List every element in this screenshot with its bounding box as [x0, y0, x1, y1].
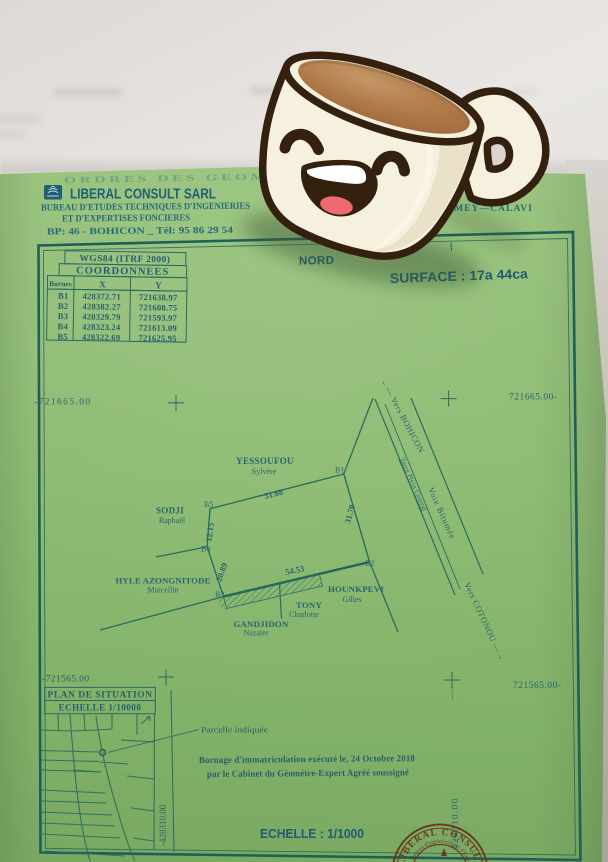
svg-text:721613.09: 721613.09	[139, 323, 177, 334]
svg-text:B2: B2	[365, 559, 374, 568]
svg-text:LIBERAL CONSULT SARL: LIBERAL CONSULT SARL	[70, 187, 216, 203]
svg-text:PLAN DE SITUATION: PLAN DE SITUATION	[48, 691, 153, 701]
svg-text:B1: B1	[58, 291, 69, 301]
svg-text:B4: B4	[201, 545, 210, 554]
svg-text:ECHELLE 1/10000: ECHELLE 1/10000	[59, 703, 142, 713]
svg-text:Terre Plein Central: Terre Plein Central	[398, 457, 428, 512]
svg-text:SODJI: SODJI	[156, 506, 184, 516]
svg-text:721625.95: 721625.95	[138, 333, 176, 344]
svg-text:721565.00-: 721565.00-	[513, 681, 562, 691]
svg-text:Bornage d'immatriculation exéc: Bornage d'immatriculation exécuté le, 24…	[199, 754, 415, 766]
svg-text:20.89: 20.89	[213, 561, 229, 582]
svg-text:Raphaël: Raphaël	[159, 516, 186, 525]
svg-text:ABOMEY—CALAVI: ABOMEY—CALAVI	[430, 204, 533, 214]
svg-text:-721665.00: -721665.00	[34, 398, 92, 408]
svg-text:Bornes: Bornes	[49, 279, 72, 288]
svg-text:RE: RE	[512, 188, 524, 198]
svg-text:ET D'EXPERTISES FONCIERES: ET D'EXPERTISES FONCIERES	[62, 213, 190, 224]
svg-text:B3: B3	[215, 590, 224, 599]
svg-text:-721565.00: -721565.00	[42, 675, 90, 685]
svg-text:BUREAU D'ETUDES TECHNIQUES: BUREAU D'ETUDES TECHNIQUES D'INGENIERIES	[41, 202, 250, 214]
svg-text:GANDJIDON: GANDJIDON	[233, 619, 289, 629]
svg-text:428323.24: 428323.24	[82, 322, 121, 333]
svg-text:ECHELLE : 1/1000: ECHELLE : 1/1000	[260, 826, 364, 841]
svg-text:Y: Y	[155, 280, 162, 290]
svg-text:B3: B3	[58, 311, 69, 321]
svg-text:←— Vers BOHICON: ←— Vers BOHICON	[379, 377, 427, 454]
svg-text:B5: B5	[204, 500, 213, 509]
svg-text:721608.75: 721608.75	[139, 302, 177, 313]
svg-text:SURFACE : 17a 44ca: SURFACE : 17a 44ca	[390, 266, 529, 286]
svg-text:721638.97: 721638.97	[139, 292, 178, 303]
svg-text:-428310.00: -428310.00	[158, 804, 168, 846]
svg-text:Nazaire: Nazaire	[244, 629, 269, 638]
svg-text:428322.69: 428322.69	[82, 332, 120, 343]
svg-text:B2: B2	[58, 301, 69, 311]
svg-text:X: X	[99, 279, 106, 289]
svg-text:YESSOUFOU: YESSOUFOU	[236, 456, 294, 466]
svg-text:Charlotte: Charlotte	[289, 610, 319, 619]
svg-text:NORD: NORD	[299, 255, 335, 268]
svg-text:BP: 46 - BOHICON _ Tél:: BP: 46 - BOHICON _ Tél: 95 86 29 54	[47, 226, 233, 238]
svg-text:Vers COTONOU —→: Vers COTONOU —→	[462, 581, 507, 663]
svg-text:12.15: 12.15	[204, 522, 216, 542]
svg-text:54.53: 54.53	[284, 563, 305, 577]
svg-text:par le Cabinet du Géomètre-Exp: par le Cabinet du Géomètre-Expert Agréé …	[207, 768, 409, 780]
svg-text:428329.79: 428329.79	[82, 311, 120, 322]
svg-text:HYLE AZONGNITODE: HYLE AZONGNITODE	[115, 576, 210, 586]
svg-text:B1: B1	[335, 466, 344, 475]
svg-text:428372.71: 428372.71	[83, 291, 121, 302]
svg-text:WGS84 (ITRF 2000): WGS84 (ITRF 2000)	[79, 253, 170, 265]
svg-text:Parcelle indiquée: Parcelle indiquée	[201, 725, 268, 735]
svg-text:31.70: 31.70	[342, 503, 357, 524]
svg-text:TS: TS	[395, 171, 410, 181]
svg-text:Voie Bitumée: Voie Bitumée	[426, 486, 458, 541]
svg-text:721665.00-: 721665.00-	[509, 393, 558, 403]
svg-text:Sylvère: Sylvère	[252, 467, 277, 476]
svg-text:Gilles: Gilles	[342, 595, 361, 604]
svg-text:COORDONNEES: COORDONNEES	[76, 265, 169, 277]
svg-text:Marcellin: Marcellin	[147, 586, 178, 595]
svg-text:HOUNKPEVI: HOUNKPEVI	[328, 584, 384, 594]
svg-text:B4: B4	[58, 321, 69, 331]
svg-text:TONY: TONY	[296, 600, 323, 610]
svg-text:428382.27: 428382.27	[82, 301, 121, 312]
svg-text:721593.97: 721593.97	[139, 312, 178, 323]
svg-text:ORDRES DES GEOMETRES-EXPERTS: ORDRES DES GEOMETRES-EXPERTS	[64, 168, 442, 185]
svg-text:B5: B5	[57, 331, 68, 341]
svg-text:51.68: 51.68	[263, 487, 284, 501]
